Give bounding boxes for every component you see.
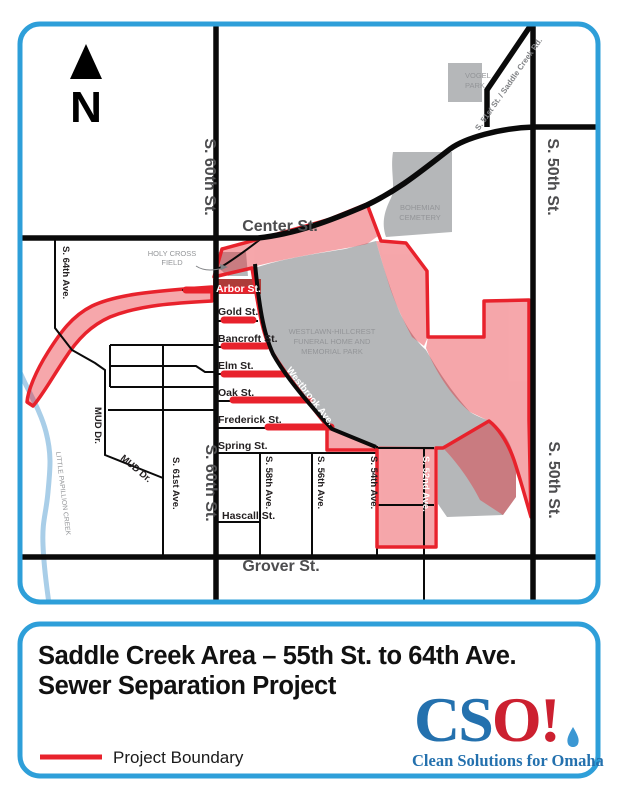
s61st-label: S. 61st Ave. xyxy=(170,457,181,510)
svg-text:BOHEMIAN: BOHEMIAN xyxy=(400,203,440,212)
frederick-st-label: Frederick St. xyxy=(218,414,282,426)
svg-text:HOLY CROSS: HOLY CROSS xyxy=(148,249,197,258)
s50th-label-north: S. 50th St. xyxy=(544,138,561,215)
legend-label: Project Boundary xyxy=(113,748,244,767)
svg-text:PARK: PARK xyxy=(465,81,485,90)
s50th-label-south: S. 50th St. xyxy=(545,441,562,518)
svg-text:VOGEL: VOGEL xyxy=(465,71,491,80)
s60th-label-south: S. 60th St. xyxy=(202,444,219,521)
s58th-label: S. 58th Ave. xyxy=(263,456,274,509)
logo-cs: CS xyxy=(414,684,492,755)
s56th-label: S. 56th Ave. xyxy=(315,456,326,509)
s52nd-label: S. 52nd Ave. xyxy=(420,456,431,512)
elm-st-label: Elm St. xyxy=(218,360,254,372)
north-label: N xyxy=(70,83,102,132)
oak-st-label: Oak St. xyxy=(218,387,254,399)
grover-st-label: Grover St. xyxy=(242,558,319,575)
svg-text:CEMETERY: CEMETERY xyxy=(399,213,441,222)
map-content: HOLY CROSS FIELD VOGEL PARK BOHEMIAN CEM… xyxy=(14,22,600,604)
gold-st-label: Gold St. xyxy=(218,306,258,318)
arbor-st-label: Arbor St. xyxy=(216,283,261,295)
svg-text:CSO!: CSO! xyxy=(414,684,559,755)
svg-text:WESTLAWN-HILLCREST: WESTLAWN-HILLCREST xyxy=(289,327,376,336)
s60th-label-north: S. 60th St. xyxy=(201,138,218,215)
logo-tagline: Clean Solutions for Omaha xyxy=(412,751,604,770)
map-canvas: HOLY CROSS FIELD VOGEL PARK BOHEMIAN CEM… xyxy=(0,0,618,800)
svg-text:FIELD: FIELD xyxy=(161,258,183,267)
hascall-st-label: Hascall St. xyxy=(222,510,275,522)
svg-text:MEMORIAL PARK: MEMORIAL PARK xyxy=(301,347,363,356)
s54th-label: S. 54th Ave. xyxy=(368,456,379,509)
footer-panel: Saddle Creek Area – 55th St. to 64th Ave… xyxy=(20,624,604,776)
title-line2: Sewer Separation Project xyxy=(38,672,337,700)
bancroft-st-label: Bancroft St. xyxy=(218,333,278,345)
bohemian-cemetery-area xyxy=(384,152,452,237)
title-line1: Saddle Creek Area – 55th St. to 64th Ave… xyxy=(38,642,516,670)
logo-o: O! xyxy=(492,684,559,755)
mud-dr-label-vertical: MUD Dr. xyxy=(92,407,103,444)
project-map-flyer: HOLY CROSS FIELD VOGEL PARK BOHEMIAN CEM… xyxy=(0,0,618,800)
spring-st-label: Spring St. xyxy=(218,440,268,452)
s64th-label: S. 64th Ave. xyxy=(60,246,71,299)
center-st-label: Center St. xyxy=(242,218,318,235)
svg-text:FUNERAL HOME AND: FUNERAL HOME AND xyxy=(294,337,371,346)
